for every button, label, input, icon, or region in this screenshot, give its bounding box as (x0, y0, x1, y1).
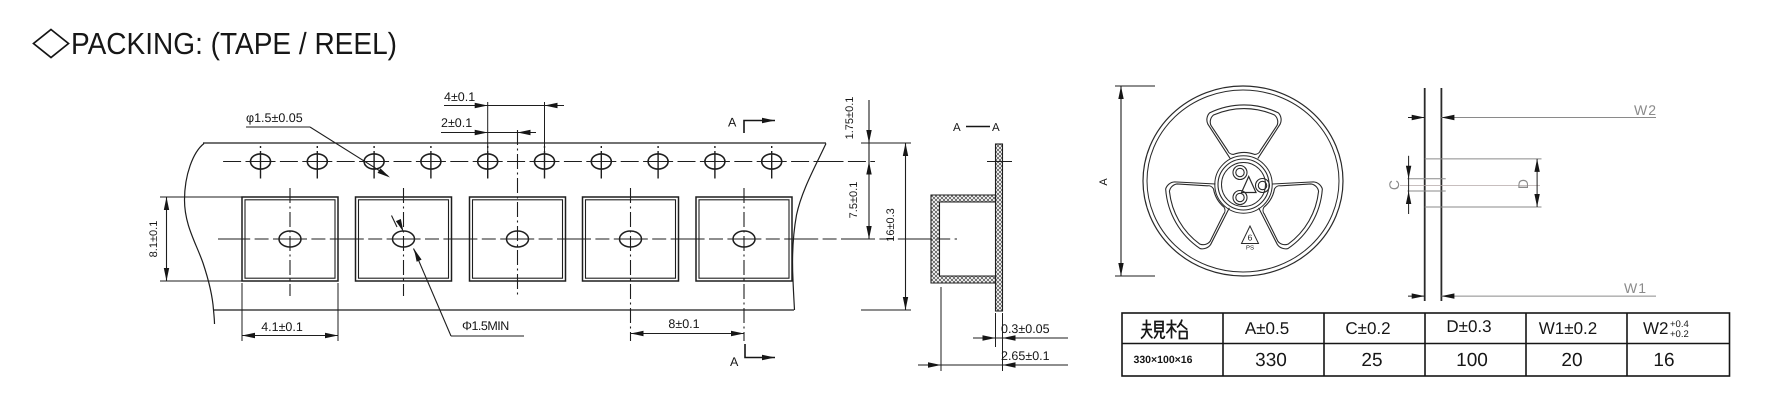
svg-text:8±0.1: 8±0.1 (668, 317, 699, 331)
svg-text:D: D (1515, 179, 1531, 189)
svg-text:A: A (953, 122, 961, 134)
svg-text:A: A (728, 116, 737, 130)
svg-text:25: 25 (1361, 350, 1382, 371)
svg-text:Φ1.5MIN: Φ1.5MIN (462, 319, 509, 333)
svg-text:2±0.1: 2±0.1 (441, 116, 472, 130)
svg-text:20: 20 (1561, 350, 1582, 371)
svg-text:A: A (730, 355, 739, 369)
svg-text:16±0.3: 16±0.3 (885, 208, 897, 242)
svg-text:W1±0.2: W1±0.2 (1539, 319, 1597, 338)
svg-text:4.1±0.1: 4.1±0.1 (261, 320, 303, 334)
svg-text:W2: W2 (1643, 319, 1669, 338)
svg-text:PS: PS (1246, 245, 1254, 252)
svg-text:7.5±0.1: 7.5±0.1 (848, 182, 860, 219)
svg-text:A: A (992, 122, 1000, 134)
svg-text:6: 6 (1248, 233, 1253, 243)
svg-text:PACKING: (TAPE / REEL): PACKING: (TAPE / REEL) (71, 27, 397, 61)
svg-text:+0.2: +0.2 (1670, 329, 1689, 340)
svg-text:D±0.3: D±0.3 (1446, 317, 1491, 336)
svg-text:W1: W1 (1624, 280, 1647, 296)
svg-text:100: 100 (1456, 350, 1488, 371)
svg-text:8.1±0.1: 8.1±0.1 (148, 221, 160, 258)
svg-text:1.75±0.1: 1.75±0.1 (844, 97, 856, 140)
svg-text:0.3±0.05: 0.3±0.05 (1001, 322, 1050, 336)
svg-text:16: 16 (1653, 350, 1674, 371)
svg-text:W2: W2 (1634, 102, 1657, 118)
svg-text:C±0.2: C±0.2 (1345, 319, 1390, 338)
svg-text:330: 330 (1255, 350, 1287, 371)
svg-text:A: A (1098, 178, 1110, 186)
svg-text:φ1.5±0.05: φ1.5±0.05 (246, 111, 303, 125)
svg-text:C: C (1386, 180, 1402, 190)
svg-text:330×100×16: 330×100×16 (1134, 354, 1193, 366)
svg-text:4±0.1: 4±0.1 (444, 90, 475, 104)
svg-text:2.65±0.1: 2.65±0.1 (1001, 349, 1050, 363)
svg-text:A±0.5: A±0.5 (1245, 319, 1289, 338)
